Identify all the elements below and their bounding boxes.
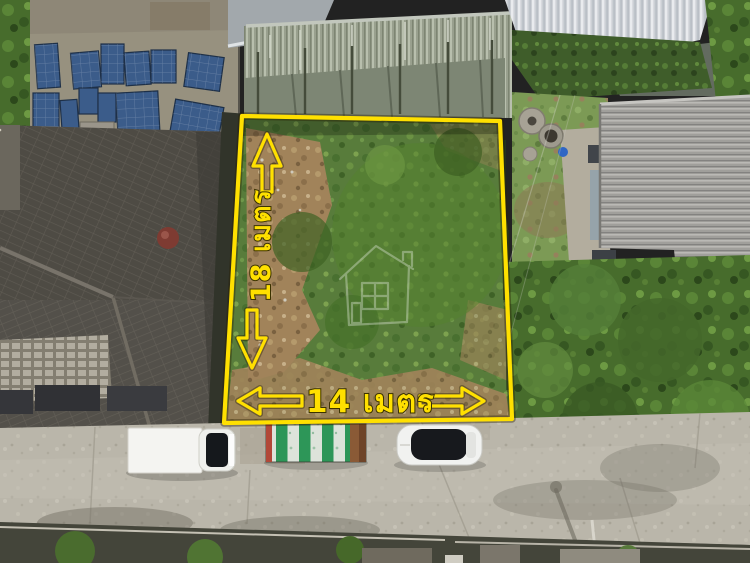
dark-panel <box>0 390 33 414</box>
side-length-label: 18 เมตร <box>246 189 277 302</box>
light-weeds <box>365 145 405 185</box>
white-sedan <box>394 425 486 472</box>
satellite-dish <box>157 227 179 249</box>
left-edge-panels <box>0 125 20 210</box>
dark-panel <box>35 385 100 411</box>
covered-truck <box>264 424 368 470</box>
bottom-structure <box>480 545 520 563</box>
satellite-dish-center <box>161 231 169 239</box>
left-houses <box>0 0 240 435</box>
dark-panel <box>107 386 167 411</box>
scene-svg: 18 เมตร 14 เมตร <box>0 0 750 563</box>
frontage-length-label: 14 เมตร <box>306 384 435 420</box>
truck-windshield <box>206 433 228 467</box>
awning-strip <box>590 170 600 240</box>
white-truck <box>126 428 238 481</box>
bush <box>336 536 364 563</box>
bottom-structure <box>445 555 463 563</box>
shrub <box>434 128 482 176</box>
shrub <box>272 212 332 272</box>
solar-panel-roof <box>30 0 238 145</box>
sedan-glass <box>411 429 467 460</box>
bottom-structure <box>362 548 432 563</box>
bottom-structure <box>560 549 640 563</box>
aerial-photo: 18 เมตร 14 เมตร <box>0 0 750 563</box>
